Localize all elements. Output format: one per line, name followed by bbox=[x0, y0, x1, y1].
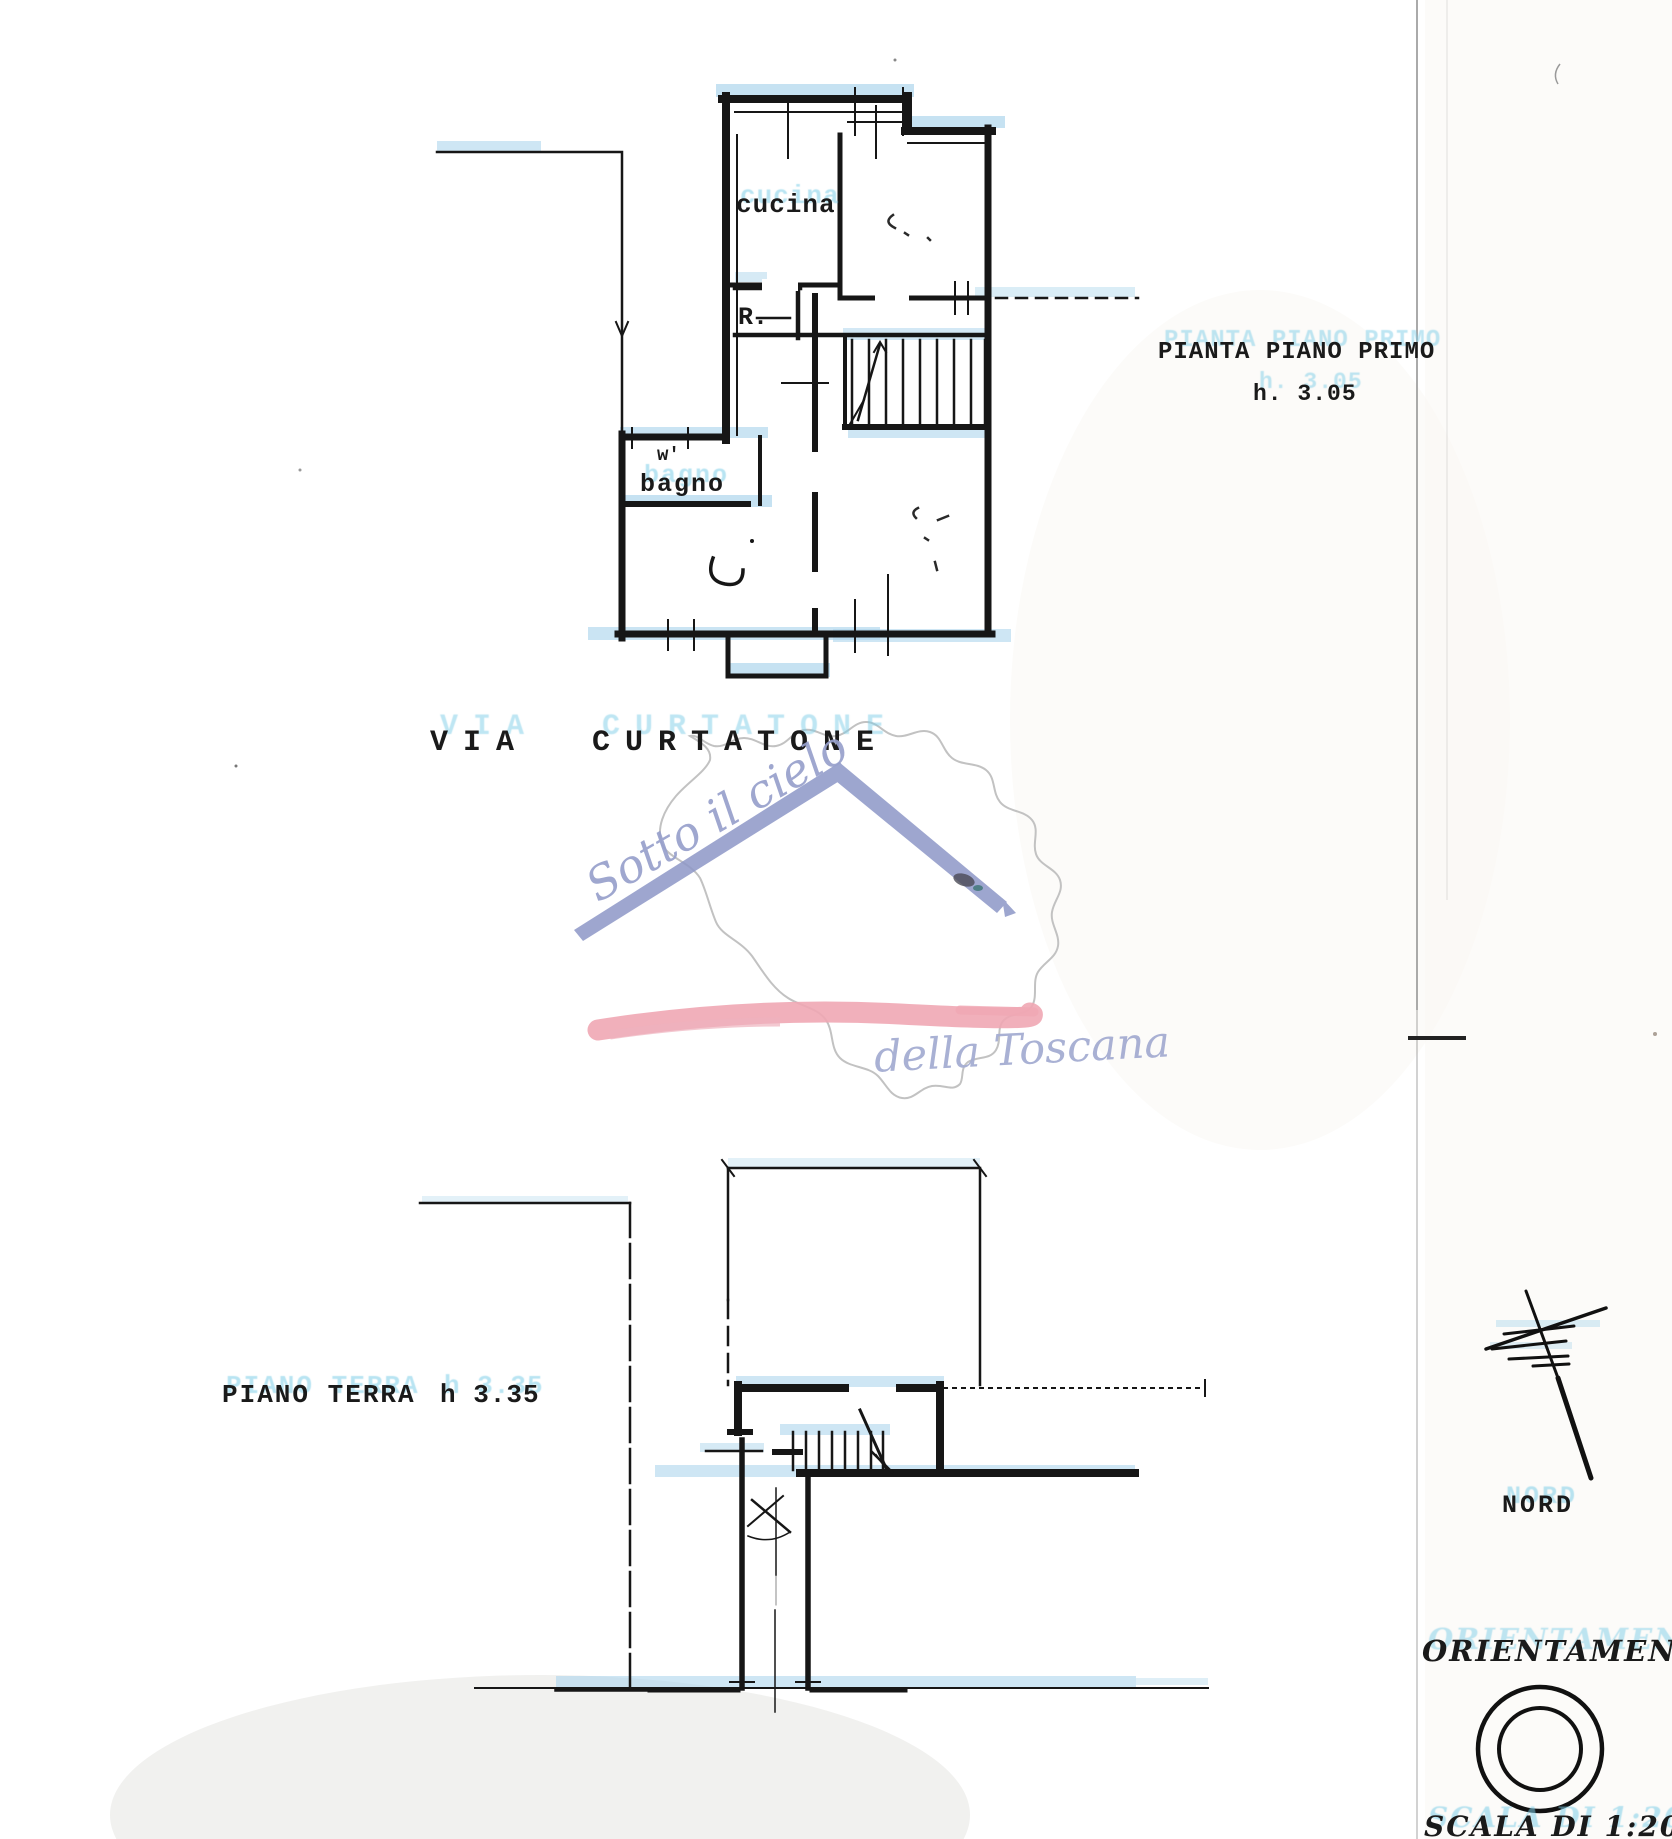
ground-floor-height: h 3.35 bbox=[440, 1382, 540, 1409]
compass-label: NORD bbox=[1502, 1493, 1574, 1519]
ground-floor-title: PIANO TERRA bbox=[222, 1382, 416, 1409]
first-floor-window-ticks bbox=[632, 88, 968, 655]
scanned-floor-plan-page: cucina R. w' bagno PIANTA PIANO PRIMO h.… bbox=[0, 0, 1672, 1839]
scale-label: SCALA DI 1:200 bbox=[1424, 1812, 1672, 1839]
first-floor-height: h. 3.05 bbox=[1253, 382, 1357, 406]
plan-drawing bbox=[0, 0, 1672, 1839]
first-floor-title: PIANTA PIANO PRIMO bbox=[1158, 340, 1435, 365]
handwritten-marks bbox=[888, 215, 948, 570]
room-label-wc: w' bbox=[657, 446, 680, 466]
room-label-bathroom: bagno bbox=[640, 472, 725, 498]
ground-floor-door-swing bbox=[748, 1488, 790, 1605]
ground-floor-plan bbox=[420, 1160, 1208, 1712]
room-label-r: R. bbox=[738, 305, 768, 331]
room-label-kitchen: cucina bbox=[736, 192, 836, 219]
scan-shading bbox=[110, 0, 1672, 1839]
ground-floor-stairs bbox=[775, 1410, 892, 1472]
orientation-label: ORIENTAMENTO bbox=[1422, 1636, 1672, 1666]
